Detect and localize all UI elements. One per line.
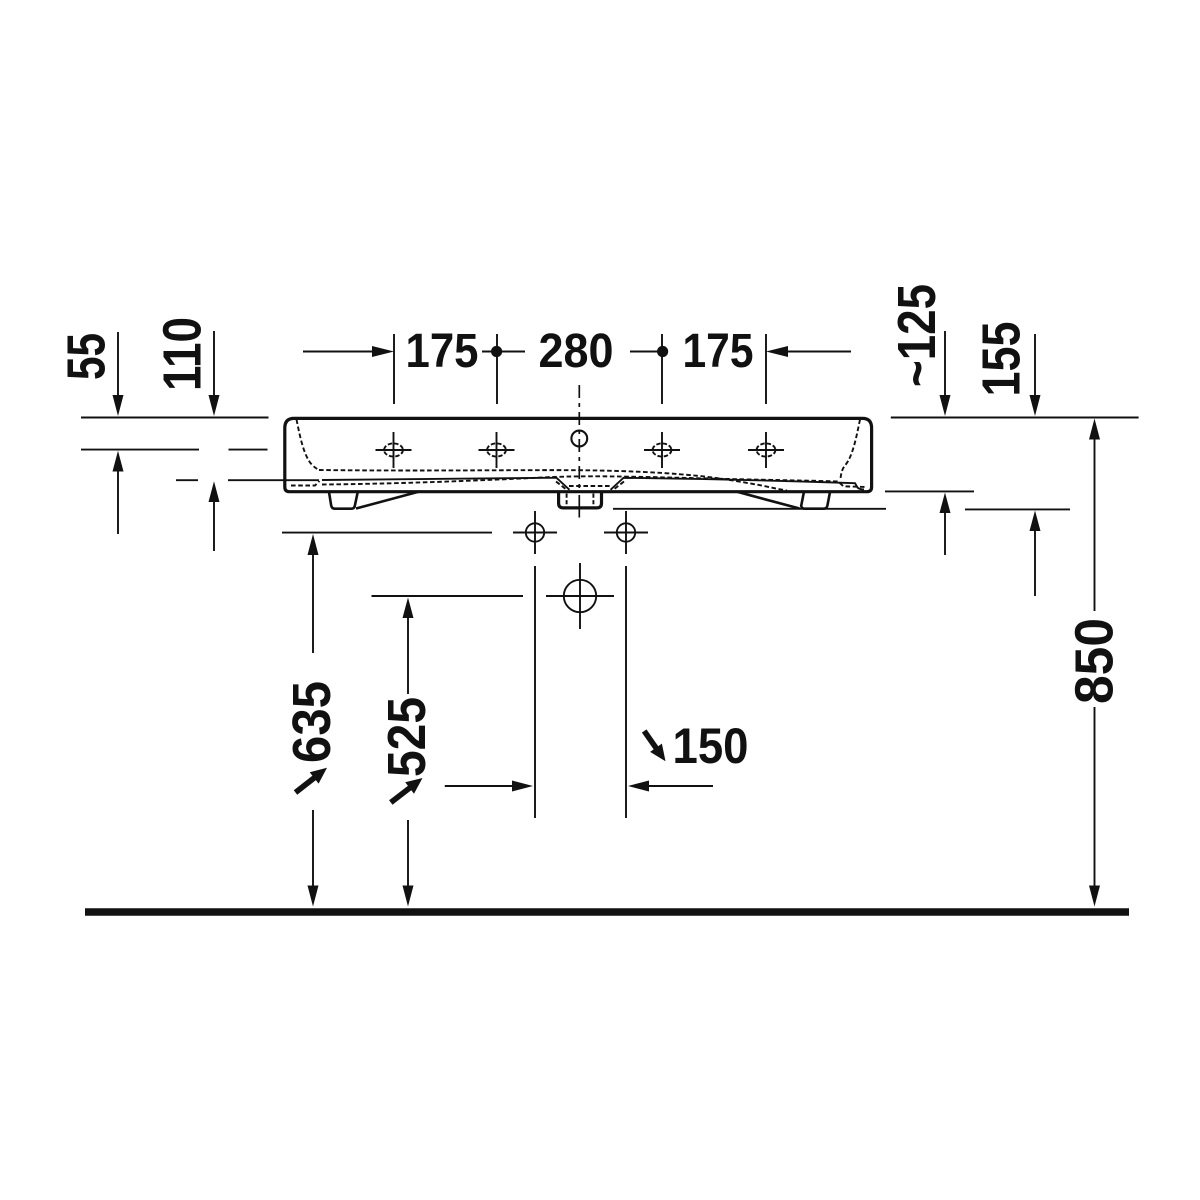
svg-text:155: 155 [972,322,1032,397]
svg-text:175: 175 [406,325,479,378]
svg-text:525: 525 [377,697,437,777]
svg-text:~125: ~125 [887,284,947,387]
svg-text:280: 280 [539,325,614,378]
svg-text:55: 55 [56,333,116,380]
svg-text:110: 110 [153,317,213,391]
svg-text:150: 150 [673,718,749,774]
svg-text:635: 635 [282,681,342,763]
svg-text:175: 175 [683,325,754,378]
svg-text:850: 850 [1065,618,1125,704]
